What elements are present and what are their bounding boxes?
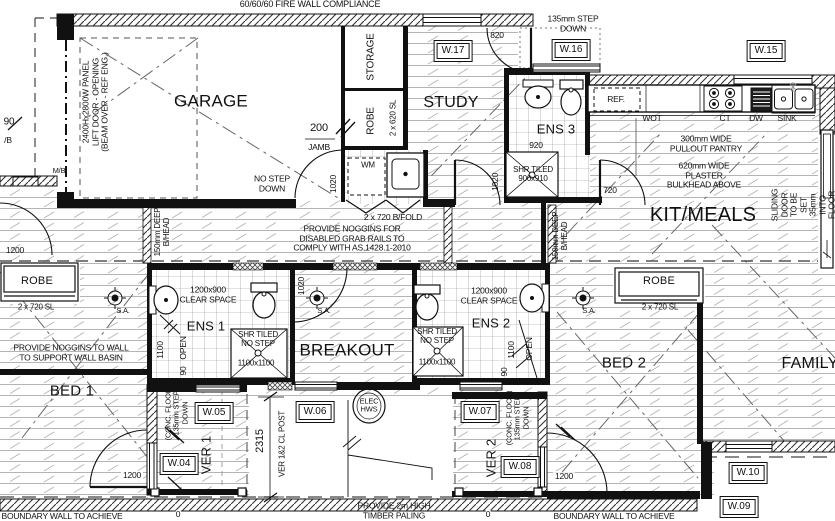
window-label-w04: W.04 [163, 456, 196, 472]
dim-90-ens2: 90 [500, 367, 510, 376]
hws-label: ELEC HWS [360, 398, 379, 415]
sliding-door-note: SLIDING DOOR TO BE SET 35mm INTO FLOOR [771, 189, 835, 222]
window-label-w06: W.06 [299, 404, 332, 420]
smoke-alarm-label: S.A. [116, 307, 129, 315]
ver-post-note: VER 1&2 CL POST [279, 411, 288, 477]
dim-fragment-0-left: 0 [176, 510, 181, 520]
ens1-shower-note: SHR TILED NO STEP [238, 331, 278, 349]
bulkhead-label-right: 150mm DEEP B/HEAD [552, 212, 570, 261]
ens1-shower-size: 1100x1100 [238, 360, 275, 369]
boundary-wall-note-right: BOUNDARY WALL TO ACHIEVE [553, 512, 674, 521]
dim-720: 720 [603, 186, 617, 196]
bulkhead-label-left: 150mm DEEP B/HEAD [154, 208, 172, 257]
ens2-basin-icon [520, 284, 549, 312]
robe-label-right: ROBE [643, 275, 675, 287]
window-label-w16: W.16 [555, 42, 588, 58]
ens3-toilet-icon [560, 80, 583, 115]
dim-fragment-0-right: 0 [486, 510, 491, 520]
label-fragment-b: /B [4, 136, 12, 146]
robe-label-left: ROBE [21, 275, 53, 287]
dim-920: 920 [529, 141, 543, 151]
window-label-w10: W.10 [732, 465, 765, 481]
no-step-note: NO STEP DOWN [254, 174, 290, 193]
ens1-toilet-icon [251, 283, 277, 318]
ens3-basin-icon [523, 80, 553, 108]
dim-1200-bed1-door: 1200 [121, 471, 143, 481]
room-label-ens2: ENS 2 [472, 317, 511, 332]
floorplan-linework [0, 0, 835, 521]
boundary-wall-note-left: BOUNDARY WALL TO ACHIEVE [1, 512, 122, 521]
window-label-w09: W.09 [723, 499, 756, 515]
ens3-shower-note: SHR TILED 900x910 [513, 166, 553, 184]
window-label-w08: W.08 [504, 459, 537, 475]
room-label-study: STUDY [423, 94, 478, 112]
sink-label: SINK [777, 114, 796, 124]
ens2-shower-note: SHR TILED NO STEP [417, 328, 457, 346]
dim-200: 200 [310, 122, 328, 134]
room-label-ens1: ENS 1 [187, 320, 226, 335]
room-label-storage: STORAGE [365, 33, 376, 80]
garage-door-note: 2400Hx2800W PANEL LIFT DOOR - OPENING (B… [82, 52, 111, 152]
dim-bifold: 2 x 720 B/FOLD [364, 213, 422, 223]
fridge-label: REF. [607, 95, 625, 105]
noggins-grab-rails-note: PROVIDE NOGGINS FOR DISABLED GRAB RAILS … [293, 225, 410, 254]
window-label-w17: W.17 [437, 43, 470, 59]
dim-1100-ens1: 1100 [156, 341, 166, 358]
noggins-basin-note: PROVIDE NOGGINS TO WALL TO SUPPORT WALL … [13, 343, 128, 362]
room-label-robe-top: ROBE [365, 107, 376, 135]
timber-paling-note: PROVIDE 2m HIGH TIMBER PALING [357, 501, 430, 520]
room-label-breakout: BREAKOUT [299, 340, 394, 359]
bulkhead-note: 620mm WIDE PLASTER BULKHEAD ABOVE [667, 162, 741, 191]
ens1-basin-icon [149, 286, 178, 314]
dim-1020-study-door: 1020 [491, 173, 501, 191]
ens1-clear-space-note: 1200x900 CLEAR SPACE [180, 285, 237, 304]
room-label-garage: GARAGE [174, 91, 248, 110]
dim-1200-hall: 1200 [6, 246, 24, 256]
dim-2x620sl: 2 x 620 SL [390, 100, 399, 136]
dim-2315: 2315 [254, 429, 266, 453]
dim-90-ens1: 90 [179, 366, 189, 375]
ver2-conc-floor-note: (CONC. FLOOR) 135mm STEP DOWN [505, 391, 530, 445]
dim-1100-ens2: 1100 [507, 341, 517, 358]
floor-plan: 60/60/60 FIRE WALL COMPLIANCE 135mm STEP… [0, 0, 835, 521]
meter-box-label: M/B [53, 167, 66, 175]
smoke-alarm-label: S.A. [317, 307, 330, 315]
room-label-ens3: ENS 3 [537, 123, 576, 138]
fire-wall-note: 60/60/60 FIRE WALL COMPLIANCE [240, 0, 381, 9]
dim-1200-bed2-door: 1200 [553, 472, 575, 482]
washing-machine-label: WM [361, 162, 375, 171]
open-label-ens2: OPEN [525, 337, 535, 360]
room-label-ver2: VER 2 [485, 439, 500, 478]
ens2-shower-size: 1100x1100 [419, 359, 456, 368]
open-label-ens1: OPEN [179, 336, 189, 359]
laundry-tub-icon [387, 153, 424, 197]
room-label-bed2: BED 2 [602, 356, 646, 373]
dishwasher-label: DW [749, 114, 763, 124]
ver1-conc-floor-note: (CONC. FLOOR) 135mm STEP DOWN [164, 386, 189, 440]
room-label-family: FAMILY [782, 355, 835, 373]
smoke-alarm-label: S.A. [582, 307, 595, 315]
dim-2x720sl-right: 2 x 720 SL [642, 304, 678, 313]
dishwasher-icon [751, 88, 772, 111]
dim-fragment-90: 90 [4, 116, 15, 127]
room-label-kit-meals: KIT/MEALS [650, 204, 756, 226]
cooktop-label: CT [720, 114, 731, 124]
dim-820: 820 [490, 31, 504, 41]
dim-2x720sl-left: 2 x 720 SL [18, 304, 54, 313]
window-label-w15: W.15 [750, 43, 783, 59]
window-label-w07: W.07 [464, 404, 497, 420]
room-label-ver1: VER 1 [200, 436, 215, 475]
meter-box-icon [13, 177, 38, 186]
ens2-clear-space-note: 1200x900 CLEAR SPACE [461, 286, 518, 305]
pantry-note: 300mm WIDE PULLOUT PANTRY [670, 134, 742, 153]
step-down-note: 135mm STEP DOWN [548, 14, 599, 33]
dim-1020-breakout: 1020 [297, 277, 307, 295]
window-label-w05: W.05 [198, 405, 231, 421]
ens2-toilet-icon [414, 285, 440, 320]
wall-oven-label: WOT [642, 114, 661, 124]
jamb-note: JAMB [308, 143, 330, 153]
room-label-bed1: BED 1 [50, 384, 94, 401]
dim-1020-hall-door: 1020 [329, 175, 339, 193]
